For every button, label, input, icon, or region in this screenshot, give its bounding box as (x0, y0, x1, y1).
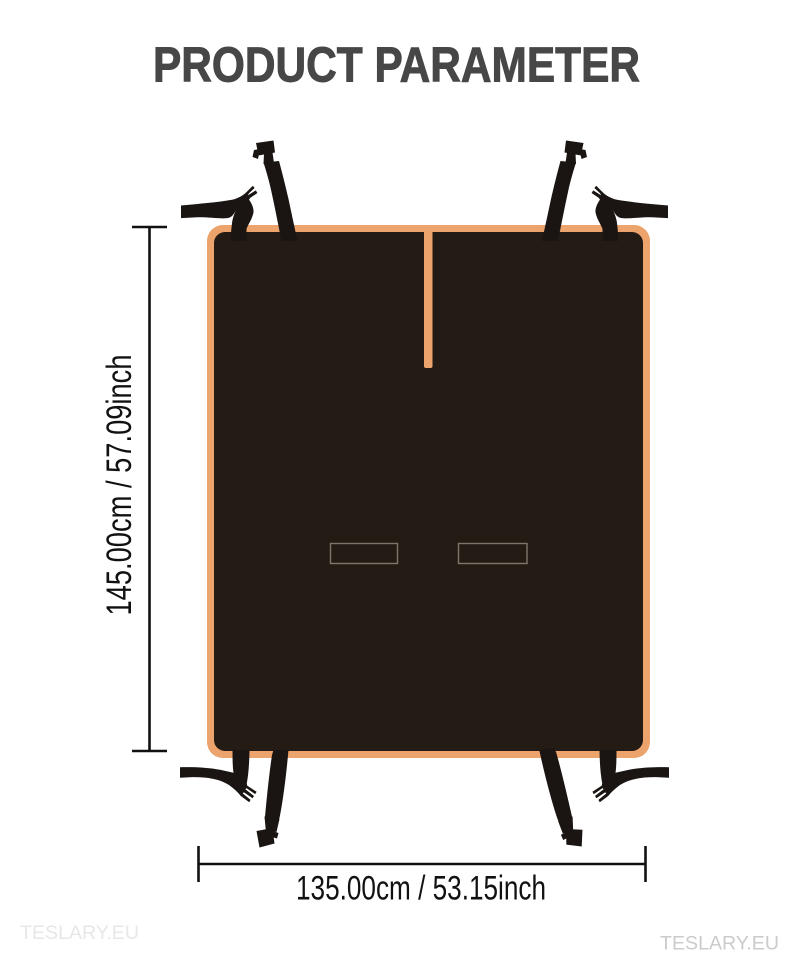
svg-text:TESLARY.EU: TESLARY.EU (660, 933, 779, 955)
svg-text:135.00cm / 53.15inch: 135.00cm / 53.15inch (296, 870, 546, 908)
svg-text:145.00cm / 57.09inch: 145.00cm / 57.09inch (100, 355, 139, 616)
svg-text:PRODUCT PARAMETER: PRODUCT PARAMETER (153, 38, 640, 92)
svg-text:TESLARY.EU: TESLARY.EU (20, 922, 139, 944)
